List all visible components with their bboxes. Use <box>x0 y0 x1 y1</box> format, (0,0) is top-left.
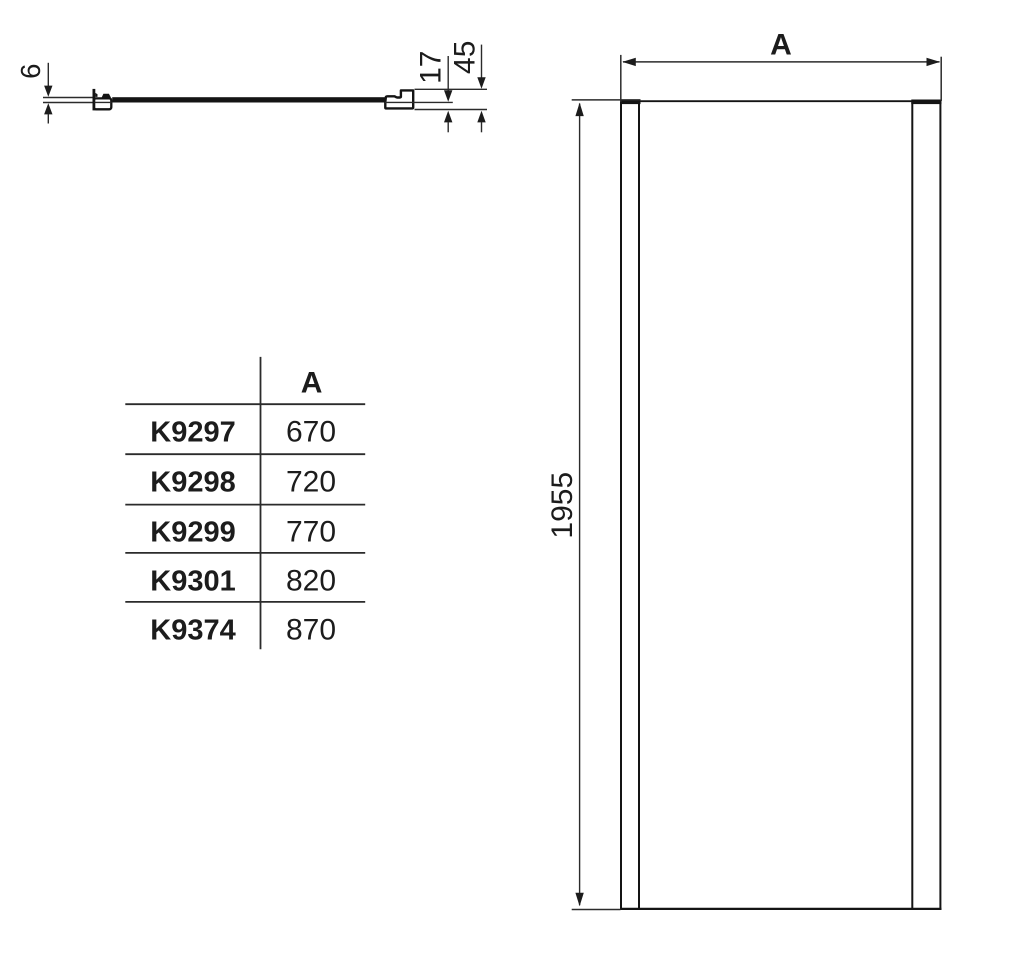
svg-text:K9297: K9297 <box>150 417 235 449</box>
svg-text:770: 770 <box>286 515 336 548</box>
svg-text:K9299: K9299 <box>150 516 235 548</box>
svg-text:720: 720 <box>286 466 336 499</box>
svg-text:670: 670 <box>286 416 336 449</box>
svg-text:870: 870 <box>286 613 336 646</box>
svg-text:K9298: K9298 <box>150 467 235 499</box>
svg-text:45: 45 <box>449 41 482 74</box>
svg-text:K9374: K9374 <box>150 614 235 646</box>
svg-text:820: 820 <box>286 564 336 597</box>
svg-text:A: A <box>301 367 323 400</box>
svg-text:1955: 1955 <box>546 472 579 539</box>
svg-text:K9301: K9301 <box>150 565 235 597</box>
svg-text:17: 17 <box>415 51 448 84</box>
svg-text:A: A <box>770 28 792 61</box>
svg-text:6: 6 <box>15 64 46 79</box>
